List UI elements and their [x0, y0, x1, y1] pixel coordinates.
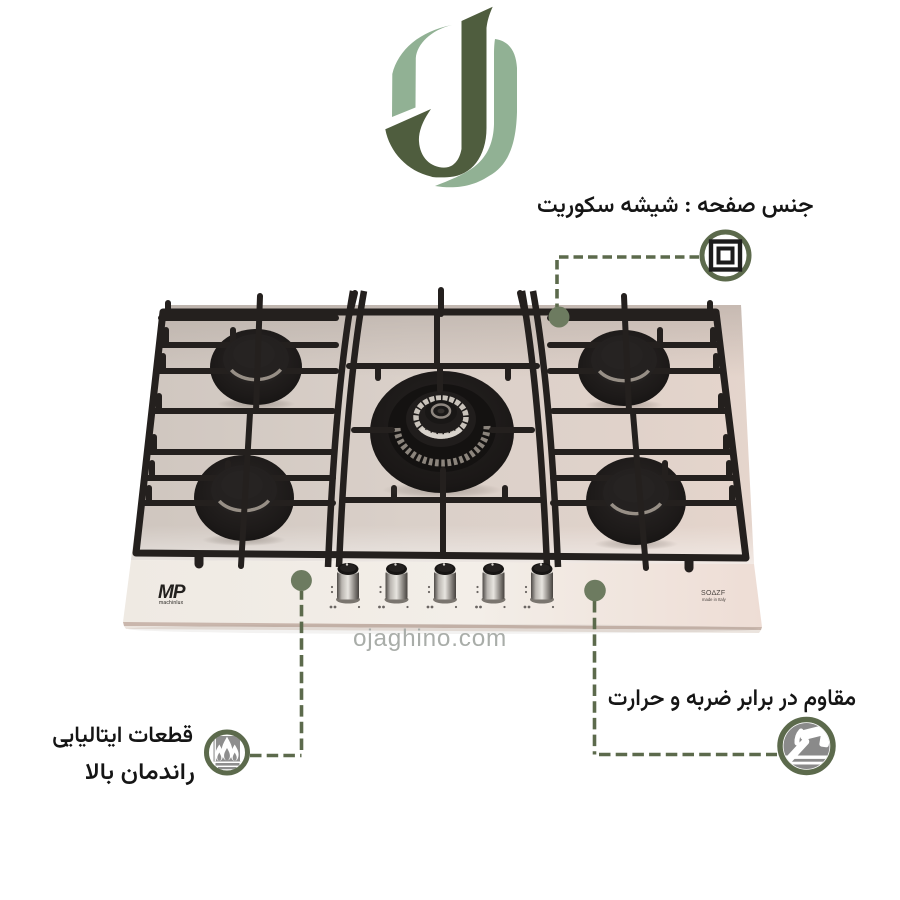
svg-text:machinlux: machinlux [159, 600, 184, 606]
svg-text:ojaghino.com: ojaghino.com [353, 625, 507, 652]
svg-text:SO∆ZF: SO∆ZF [701, 590, 725, 597]
svg-text:made in Italy: made in Italy [702, 597, 727, 602]
